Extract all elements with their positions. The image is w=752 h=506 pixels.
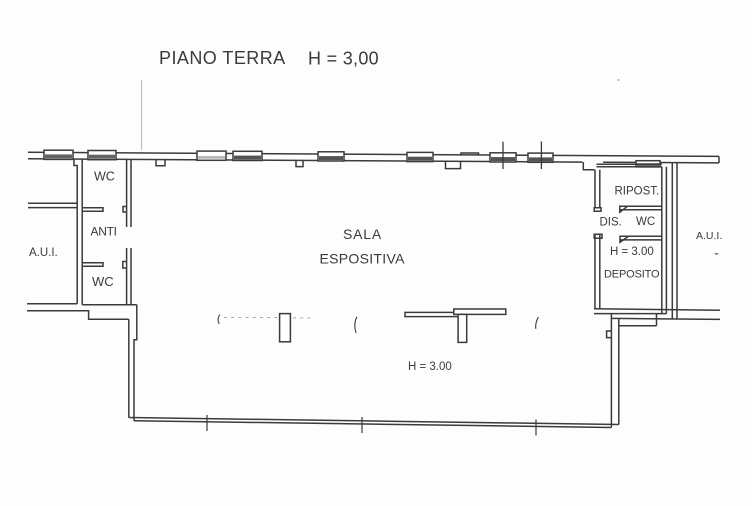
svg-text:A.U.I.: A.U.I. — [696, 230, 722, 242]
svg-text:H = 3.00: H = 3.00 — [408, 361, 452, 373]
svg-text:H = 3.00: H = 3.00 — [610, 246, 654, 258]
svg-text:DIS.: DIS. — [600, 217, 622, 229]
svg-text:ANTI: ANTI — [91, 225, 117, 239]
svg-text:PIANO TERRA: PIANO TERRA — [159, 48, 286, 68]
svg-text:ESPOSITIVA: ESPOSITIVA — [320, 251, 406, 267]
svg-text:A.U.I.: A.U.I. — [29, 247, 58, 259]
svg-text:WC: WC — [94, 170, 115, 184]
svg-text:WC: WC — [636, 216, 655, 228]
svg-text:H = 3,00: H = 3,00 — [308, 49, 379, 69]
svg-text:RIPOST.: RIPOST. — [615, 186, 660, 198]
svg-text:DEPOSITO: DEPOSITO — [604, 269, 660, 281]
svg-text:WC: WC — [92, 274, 114, 289]
svg-text:SALA: SALA — [343, 226, 382, 242]
